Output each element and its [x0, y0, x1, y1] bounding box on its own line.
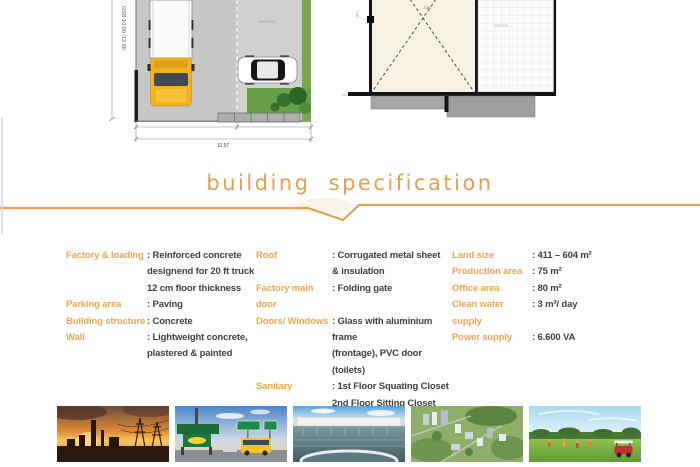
spec-label: Land size: [452, 248, 532, 264]
apron-slab: [447, 96, 535, 117]
photo-industrial-plant-sunset: [57, 406, 169, 462]
spec-column-3: Land size : 411 – 604 m² Production area…: [452, 248, 662, 346]
spec-value-line: 12 cm floor thickness: [147, 281, 256, 297]
parking-label: PARKING: [258, 20, 276, 24]
spec-value-line: : Concrete: [147, 314, 256, 330]
area-label: OFFICE: [494, 24, 509, 28]
production-room: [372, 0, 476, 92]
boundary-wall: [135, 70, 139, 122]
spec-entry: Wall : Lightweight concrete, plastered &…: [66, 330, 256, 363]
spec-entry: Doors/ Windows : Glass with aluminium fr…: [256, 314, 454, 380]
spec-entry: Parking area : Paving: [66, 297, 256, 313]
spec-label: Building structure: [66, 314, 147, 330]
spec-column-2: Roof : Corrugated metal sheet & insulati…: [256, 248, 454, 412]
wall: [554, 0, 557, 93]
spec-entry: Office area : 80 m²: [452, 281, 662, 297]
side-dimension-label: 7.00: [355, 10, 360, 19]
width-dimension-label: 10.97: [217, 143, 230, 149]
step-wall: [445, 96, 449, 112]
gsb-setback-label: GSB 10.00 /12.00: [120, 6, 126, 50]
spec-label: Office area: [452, 281, 532, 297]
divider-ornament: [0, 197, 700, 227]
spec-value-line: : 75 m²: [532, 264, 662, 280]
spec-label: Sanitary: [256, 379, 332, 395]
truck-top-view: [148, 0, 195, 106]
room-dimension-label: 7.20: [423, 5, 432, 10]
spec-value-line: : Lightweight concrete,: [147, 330, 256, 346]
spec-label: Production area: [452, 264, 532, 280]
apron-slab: [371, 96, 447, 109]
site-plan-drawing: GSB 10.00 /12.00: [105, 0, 315, 158]
spec-value-line: & insulation: [332, 264, 454, 280]
spec-value-line: : Corrugated metal sheet: [332, 248, 454, 264]
bush: [299, 102, 311, 114]
spec-value-line: (frontage), PVC door (toilets): [332, 346, 454, 379]
spec-value-line: : 3 m³/ day: [532, 297, 662, 313]
wall: [475, 0, 478, 93]
page-spine-line: [1, 117, 3, 234]
spec-value-line: designend for 20 ft truck: [147, 264, 256, 280]
spec-value-line: : 80 m²: [532, 281, 662, 297]
floor-plan-drawing: 7.00 7.20 OFFICE: [338, 0, 566, 132]
spec-entry: Clean water supply : 3 m³/ day: [452, 297, 662, 330]
spec-label: Clean water supply: [452, 297, 532, 330]
spec-entry: Power supply : 6.600 VA: [452, 330, 662, 346]
spec-entry: Factory main door : Folding gate: [256, 281, 454, 314]
spec-label: Doors/ Windows: [256, 314, 332, 330]
spec-value-line: plastered & painted: [147, 346, 256, 362]
spec-label: Wall: [66, 330, 147, 346]
spec-label: Parking area: [66, 297, 147, 313]
photo-city-aerial-view: [411, 406, 523, 462]
column-node: [367, 16, 374, 23]
photo-golf-course: [529, 406, 641, 462]
bottom-wall: [348, 92, 556, 96]
spec-entry: Factory & loading : Reinforced concrete …: [66, 248, 256, 297]
brochure-page: GSB 10.00 /12.00: [0, 0, 700, 467]
dimension-lines: [134, 122, 313, 142]
section-title: building specification: [0, 171, 700, 195]
spec-label: Roof: [256, 248, 332, 264]
spec-column-1: Factory & loading : Reinforced concrete …: [66, 248, 256, 363]
spec-label: Factory & loading: [66, 248, 147, 264]
spec-entry: Roof : Corrugated metal sheet & insulati…: [256, 248, 454, 281]
spec-entry: Production area : 75 m²: [452, 264, 662, 280]
spec-value-line: : Folding gate: [332, 281, 454, 297]
spec-value-line: : Glass with aluminium frame: [332, 314, 454, 347]
photo-toll-gate: [175, 406, 287, 462]
spec-value-line: : 411 – 604 m²: [532, 248, 662, 264]
spec-entry: Building structure : Concrete: [66, 314, 256, 330]
tiled-area: [478, 0, 554, 92]
bush: [271, 103, 280, 112]
spec-value-line: : Paving: [147, 297, 256, 313]
photo-water-treatment-plant: [293, 406, 405, 462]
wall: [369, 0, 372, 93]
spec-entry: Land size : 411 – 604 m²: [452, 248, 662, 264]
spec-label: Power supply: [452, 330, 532, 346]
bush: [277, 93, 291, 107]
spec-value-line: : 1st Floor Squating Closet: [332, 379, 454, 395]
spec-value-line: : 6.600 VA: [532, 330, 662, 346]
photo-strip: [57, 406, 641, 462]
spec-value-line: : Reinforced concrete: [147, 248, 256, 264]
watermark-blob: [297, 198, 353, 214]
sidewalk-tiles: [218, 113, 300, 122]
spec-label: Factory main door: [256, 281, 332, 314]
car-top-view: [238, 56, 297, 85]
